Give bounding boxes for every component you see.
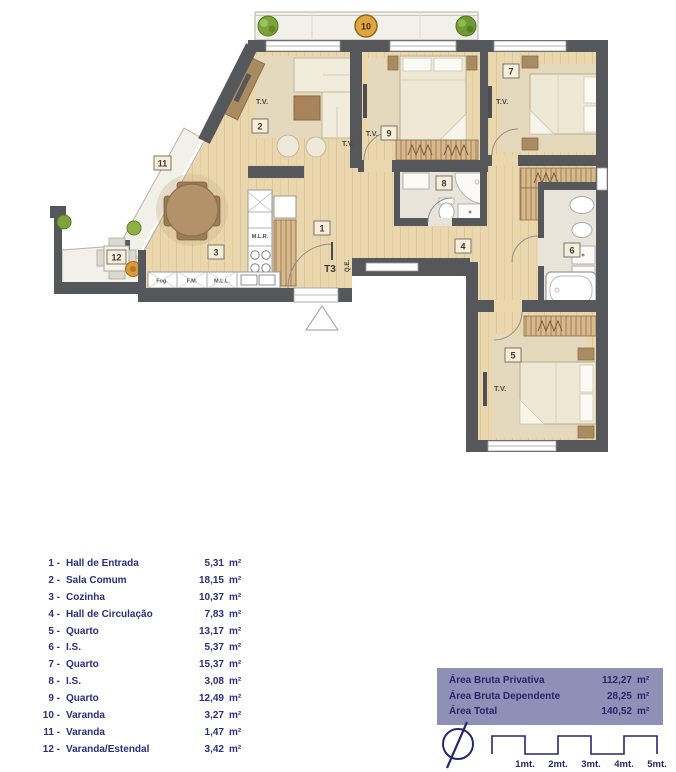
dishwasher-label: M.L.L.: [214, 279, 230, 285]
tv-label: T.V.: [342, 139, 354, 148]
tv-label: T.V.: [256, 97, 268, 106]
area-value: 112,27: [602, 675, 632, 686]
room-name: Hall de Entrada: [66, 558, 188, 569]
balcony-10: 10: [255, 12, 478, 40]
svg-text:6: 6: [569, 246, 574, 256]
oven-label: F.M.: [187, 279, 198, 285]
bedroom-5-furniture: [520, 348, 596, 438]
legend-row: 8 -I.S.3,08m²: [38, 673, 244, 690]
room-12-varanda-estendal: [50, 206, 146, 294]
room-area: 3,27: [188, 710, 224, 721]
room-marker-10: 10: [355, 15, 377, 37]
area-row: Área Total 140,52m²: [449, 704, 655, 720]
legend-row: 6 -I.S.5,37m²: [38, 639, 244, 656]
legend-row: 1 -Hall de Entrada5,31m²: [38, 555, 244, 572]
room-area: 3,08: [188, 676, 224, 687]
scale-tick-label: 1mt.: [515, 759, 535, 770]
room-name: Cozinha: [66, 592, 188, 603]
room-name: I.S.: [66, 676, 188, 687]
legend-row: 11 -Varanda1,47m²: [38, 724, 244, 741]
area-label: Área Bruta Dependente: [449, 689, 560, 705]
bedroom-9-furniture: [388, 56, 477, 140]
tv-label: T.V.: [496, 97, 508, 106]
area-row: Área Bruta Dependente 28,25m²: [449, 689, 655, 705]
room-name: Varanda: [66, 727, 188, 738]
room-name: Sala Comum: [66, 575, 188, 586]
legend-row: 3 -Cozinha10,37m²: [38, 589, 244, 606]
svg-text:8: 8: [441, 179, 446, 189]
room-area: 12,49: [188, 693, 224, 704]
svg-text:3: 3: [213, 248, 218, 258]
svg-text:10: 10: [361, 22, 371, 32]
stove-label: Fog.: [156, 279, 168, 285]
plant-icon: [456, 16, 476, 36]
tv-label: T.V.: [366, 129, 378, 138]
scale-bar: 1mt. 2mt. 3mt. 4mt. 5mt.: [430, 720, 676, 772]
svg-text:9: 9: [386, 129, 391, 139]
exterior-notch: [352, 276, 466, 302]
svg-text:11: 11: [158, 159, 168, 169]
svg-text:5: 5: [510, 351, 515, 361]
scale-tick-label: 2mt.: [548, 759, 568, 770]
svg-text:4: 4: [460, 242, 465, 252]
legend-row: 5 -Quarto13,17m²: [38, 623, 244, 640]
scale-ruler: [492, 736, 657, 754]
floor-plan: 10: [0, 0, 676, 535]
unit-type-label: T3: [324, 264, 336, 275]
washer-label: M.L.R.: [252, 234, 269, 240]
room-area: 1,47: [188, 727, 224, 738]
area-value: 28,25: [607, 691, 632, 702]
scale-tick-label: 4mt.: [614, 759, 634, 770]
floorplan-page: { "plan": { "unit": "T3", "tv": "T.V.", …: [0, 0, 676, 771]
room-area: 7,83: [188, 609, 224, 620]
legend-row: 2 -Sala Comum18,15m²: [38, 572, 244, 589]
legend-row: 4 -Hall de Circulação7,83m²: [38, 606, 244, 623]
plant-icon: [57, 215, 71, 229]
room-name: Quarto: [66, 659, 188, 670]
room-name: Quarto: [66, 693, 188, 704]
svg-text:1: 1: [319, 224, 324, 234]
svg-text:2: 2: [257, 122, 262, 132]
room-area: 13,17: [188, 626, 224, 637]
svg-text:7: 7: [508, 67, 513, 77]
scale-tick-label: 5mt.: [647, 759, 667, 770]
north-symbol-icon: [443, 722, 473, 768]
room-legend: 1 -Hall de Entrada5,31m² 2 -Sala Comum18…: [38, 555, 244, 758]
room-area: 18,15: [188, 575, 224, 586]
plant-icon: [127, 221, 141, 235]
room-area: 3,42: [188, 744, 224, 755]
entrance-arrow-icon: [306, 306, 338, 330]
room-name: Quarto: [66, 626, 188, 637]
plant-icon: [258, 16, 278, 36]
room-name: I.S.: [66, 642, 188, 653]
room-area: 10,37: [188, 592, 224, 603]
legend-row: 10 -Varanda3,27m²: [38, 707, 244, 724]
tv-label: T.V.: [494, 384, 506, 393]
room-area: 5,31: [188, 558, 224, 569]
legend-row: 9 -Quarto12,49m²: [38, 690, 244, 707]
room-name: Hall de Circulação: [66, 609, 188, 620]
room-area: 15,37: [188, 659, 224, 670]
room-name: Varanda: [66, 710, 188, 721]
electrical-panel-label: Q.E.: [345, 260, 351, 272]
scale-tick-label: 3mt.: [581, 759, 601, 770]
areas-summary-table: Área Bruta Privativa 112,27m² Área Bruta…: [437, 668, 663, 725]
legend-row: 12 -Varanda/Estendal3,42m²: [38, 741, 244, 758]
room-name: Varanda/Estendal: [66, 744, 188, 755]
area-value: 140,52: [601, 706, 632, 717]
area-row: Área Bruta Privativa 112,27m²: [449, 673, 655, 689]
legend-row: 7 -Quarto15,37m²: [38, 656, 244, 673]
room-area: 5,37: [188, 642, 224, 653]
area-label: Área Total: [449, 704, 497, 720]
area-label: Área Bruta Privativa: [449, 673, 545, 689]
svg-text:12: 12: [111, 253, 121, 263]
